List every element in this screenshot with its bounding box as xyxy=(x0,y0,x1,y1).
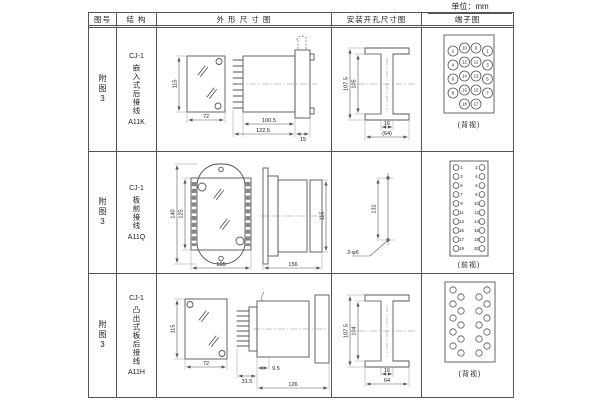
terminal-cell-a11h: (背视) xyxy=(422,274,513,397)
svg-text:14: 14 xyxy=(474,219,479,224)
model-label: CJ-1 xyxy=(129,295,144,302)
header-fig: 图号 xyxy=(89,13,117,28)
dim-cutout-inner-height: 105 xyxy=(352,79,358,88)
outline-drawing-a11q: 140 125 105 156 115 xyxy=(157,152,331,273)
mounting-drawing-a11k: 107.5 105 16 (64) xyxy=(332,28,421,151)
dim-hole-spacing: 131 xyxy=(372,204,378,213)
dim-overall-width: 64 xyxy=(384,378,390,384)
figure-number: 附图3 xyxy=(97,74,108,105)
model-label: CJ-1 xyxy=(129,53,144,60)
figure-number-cell: 附图3 xyxy=(89,28,117,152)
figure-number: 附图3 xyxy=(97,197,108,228)
svg-text:17: 17 xyxy=(473,102,478,107)
svg-text:20: 20 xyxy=(474,246,479,251)
view-caption: (背视) xyxy=(458,369,481,378)
terminal-cell-a11k: 210914121136141358161571817 (背视) xyxy=(422,28,513,152)
mounting-drawing-a11h: 107.5 104 16 64 xyxy=(332,275,421,397)
dim-flange-depth: 15 xyxy=(300,137,306,143)
structure-label: 嵌入式后接线 xyxy=(131,64,142,115)
terminal-drawing-a11h: (背视) xyxy=(423,275,513,397)
outline-cell-a11h: 115 72 31.5 9.5 126 xyxy=(157,274,332,397)
svg-text:17: 17 xyxy=(459,237,464,242)
svg-text:4: 4 xyxy=(475,174,478,179)
outline-drawing-a11h: 115 72 31.5 9.5 126 xyxy=(157,275,331,397)
svg-text:15: 15 xyxy=(473,88,478,93)
svg-text:12: 12 xyxy=(462,60,467,65)
model-code: A11Q xyxy=(128,234,145,241)
model-code: A11H xyxy=(128,369,145,376)
svg-text:16: 16 xyxy=(462,88,467,93)
svg-text:7: 7 xyxy=(460,192,463,197)
figure-number-cell: 附图3 xyxy=(89,152,117,274)
dim-inner-height: 125 xyxy=(179,209,185,218)
terminal-block xyxy=(445,282,495,362)
header-terminal: 端子图 xyxy=(422,13,513,28)
svg-text:9: 9 xyxy=(460,201,463,206)
mounting-cell-a11k: 107.5 105 16 (64) xyxy=(332,28,422,152)
dim-slot-width: 16 xyxy=(384,368,390,374)
header-outline: 外 形 尺 寸 图 xyxy=(157,13,332,28)
clamp-symbol xyxy=(297,36,307,49)
dim-side-height: 115 xyxy=(320,212,326,221)
svg-text:11: 11 xyxy=(473,60,478,65)
hole-diameter-label: 2-φ6 xyxy=(347,250,359,256)
svg-text:19: 19 xyxy=(459,246,464,251)
dim-overall-width: (64) xyxy=(382,131,392,137)
dim-slot-width: 16 xyxy=(384,121,390,127)
svg-text:13: 13 xyxy=(459,219,464,224)
terminal-drawing-a11k: 210914121136141358161571817 (背视) xyxy=(423,28,513,151)
dim-step-depth: 9.5 xyxy=(272,366,280,372)
terminal-drawing-a11q: 1357911131517192468101214161820 (前视) xyxy=(423,152,513,273)
front-view xyxy=(187,56,225,112)
svg-text:5: 5 xyxy=(460,183,463,188)
page: 单位：mm 图号 结 构 外 形 尺 寸 图 安装开孔尺寸图 端子图 附图3 C… xyxy=(0,0,600,400)
terminal-grid: 1357911131517192468101214161820 xyxy=(453,165,485,252)
svg-text:8: 8 xyxy=(475,192,478,197)
svg-text:2: 2 xyxy=(475,165,478,170)
dim-front-width: 105 xyxy=(216,262,225,268)
svg-text:16: 16 xyxy=(474,228,479,233)
structure-label: 板前接线 xyxy=(131,196,142,230)
view-caption: (背视) xyxy=(457,120,480,129)
structure-cell: CJ-1 板前接线 A11Q xyxy=(117,152,157,274)
svg-text:15: 15 xyxy=(459,228,464,233)
dim-front-height: 115 xyxy=(171,324,177,333)
terminal-grid xyxy=(449,286,489,355)
svg-text:12: 12 xyxy=(474,210,479,215)
svg-text:3: 3 xyxy=(460,174,463,179)
dim-body-depth: 100.5 xyxy=(262,118,276,124)
dim-front-height: 115 xyxy=(173,80,179,89)
dim-front-width: 72 xyxy=(203,114,209,120)
svg-text:10: 10 xyxy=(474,201,479,206)
outline-cell-a11q: 140 125 105 156 115 xyxy=(157,152,332,274)
model-label: CJ-1 xyxy=(129,185,144,192)
dim-pin-depth: 31.5 xyxy=(242,379,253,385)
svg-text:6: 6 xyxy=(475,183,478,188)
outline-drawing-a11k: 115 72 100.5 122.5 15 xyxy=(157,28,331,151)
model-code: A11K xyxy=(128,119,145,126)
dim-body-depth: 126 xyxy=(288,382,297,388)
spec-table: 图号 结 构 外 形 尺 寸 图 安装开孔尺寸图 端子图 附图3 CJ-1 嵌入… xyxy=(88,12,514,398)
view-caption: (前视) xyxy=(457,260,480,269)
mounting-cell-a11q: 131 2-φ6 xyxy=(332,152,422,274)
dim-outer-height: 140 xyxy=(171,209,177,218)
dim-cutout-inner-height: 104 xyxy=(352,326,358,335)
structure-cell: CJ-1 嵌入式后接线 A11K xyxy=(117,28,157,152)
svg-text:14: 14 xyxy=(462,74,467,79)
svg-text:13: 13 xyxy=(473,74,478,79)
dim-total-depth: 122.5 xyxy=(256,128,270,134)
dim-cutout-outer-height: 107.5 xyxy=(344,324,350,338)
header-structure: 结 构 xyxy=(117,13,157,28)
dim-cutout-outer-height: 107.5 xyxy=(344,77,350,91)
structure-label: 凸出式板后接线 xyxy=(131,306,142,366)
header-mounting: 安装开孔尺寸图 xyxy=(332,13,422,28)
dim-front-width: 72 xyxy=(203,361,209,367)
figure-number-cell: 附图3 xyxy=(89,274,117,397)
terminal-cell-a11q: 1357911131517192468101214161820 (前视) xyxy=(422,152,513,274)
mounting-drawing-a11q: 131 2-φ6 xyxy=(332,152,421,273)
svg-text:10: 10 xyxy=(462,46,467,51)
svg-text:11: 11 xyxy=(459,210,464,215)
svg-text:18: 18 xyxy=(462,102,467,107)
front-view xyxy=(185,299,227,359)
outline-cell-a11k: 115 72 100.5 122.5 15 xyxy=(157,28,332,152)
structure-cell: CJ-1 凸出式板后接线 A11H xyxy=(117,274,157,397)
figure-number: 附图3 xyxy=(97,320,108,351)
svg-text:18: 18 xyxy=(474,237,479,242)
svg-text:1: 1 xyxy=(460,165,463,170)
terminal-grid: 210914121136141358161571817 xyxy=(448,43,493,109)
dim-total-depth: 156 xyxy=(288,262,297,268)
front-view xyxy=(191,164,251,264)
mounting-cell-a11h: 107.5 104 16 64 xyxy=(332,274,422,397)
